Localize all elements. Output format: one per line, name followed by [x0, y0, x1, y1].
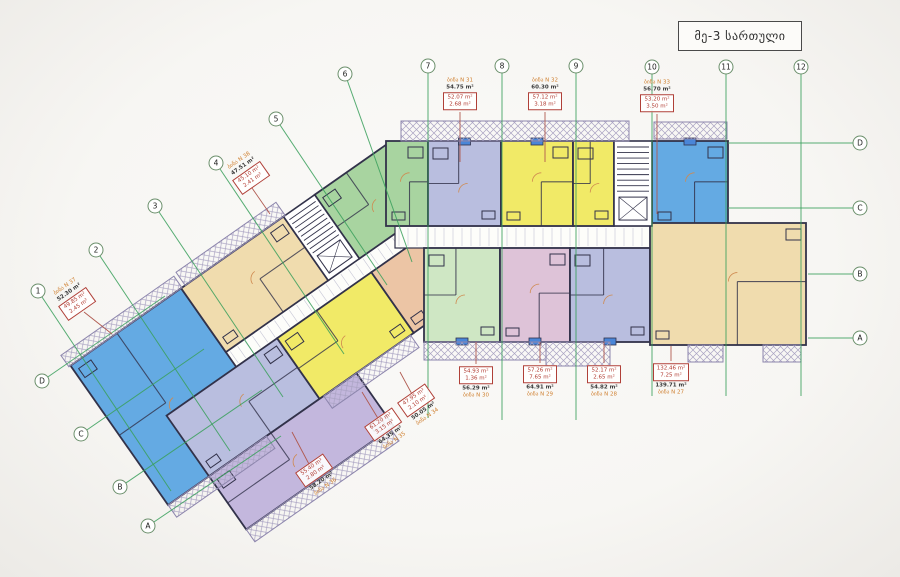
- corridor: [395, 226, 653, 248]
- unit-yellow-top-1: [501, 141, 573, 226]
- balcony: [401, 121, 629, 141]
- grid-axis-label: D: [857, 139, 863, 148]
- grid-axis-label: C: [78, 430, 83, 439]
- grid-axis-label: 6: [343, 70, 348, 79]
- grid-axis-label: 12: [796, 63, 806, 72]
- grid-axis-label: 9: [574, 62, 579, 71]
- balcony: [546, 342, 610, 366]
- balcony: [654, 122, 727, 139]
- grid-axis-label: 4: [214, 159, 219, 168]
- floor-title-box: მე-3 სართული: [678, 21, 802, 51]
- grid-axis-label: 8: [500, 62, 505, 71]
- grid-axis-label: B: [857, 270, 862, 279]
- grid-axis-label: 7: [426, 62, 431, 71]
- balcony: [763, 345, 801, 362]
- balcony: [424, 342, 546, 360]
- balcony: [688, 345, 723, 362]
- grid-axis-label: D: [39, 377, 45, 386]
- grid-axis-label: C: [857, 204, 862, 213]
- grid-axis-label: 1: [36, 287, 41, 296]
- unit-beige-east: [650, 223, 806, 345]
- grid-axis-label: 5: [274, 115, 279, 124]
- unit-blue-top: [652, 141, 728, 226]
- grid-axis-label: 11: [721, 63, 731, 72]
- grid-axis-label: 2: [94, 246, 99, 255]
- grid-axis-label: B: [117, 483, 122, 492]
- grid-axis-label: 10: [647, 63, 657, 72]
- floor-plan-svg: 123456789101112DCBADCBA: [0, 0, 900, 577]
- grid-axis-label: A: [857, 334, 863, 343]
- grid-axis-label: 3: [153, 202, 158, 211]
- east-wing: [386, 121, 806, 366]
- stair-core: [614, 141, 652, 226]
- floor-title: მე-3 სართული: [695, 29, 786, 43]
- grid-axis-label: A: [145, 522, 151, 531]
- floor-plan-canvas: 123456789101112DCBADCBA მე-3 სართული ბინ…: [0, 0, 900, 577]
